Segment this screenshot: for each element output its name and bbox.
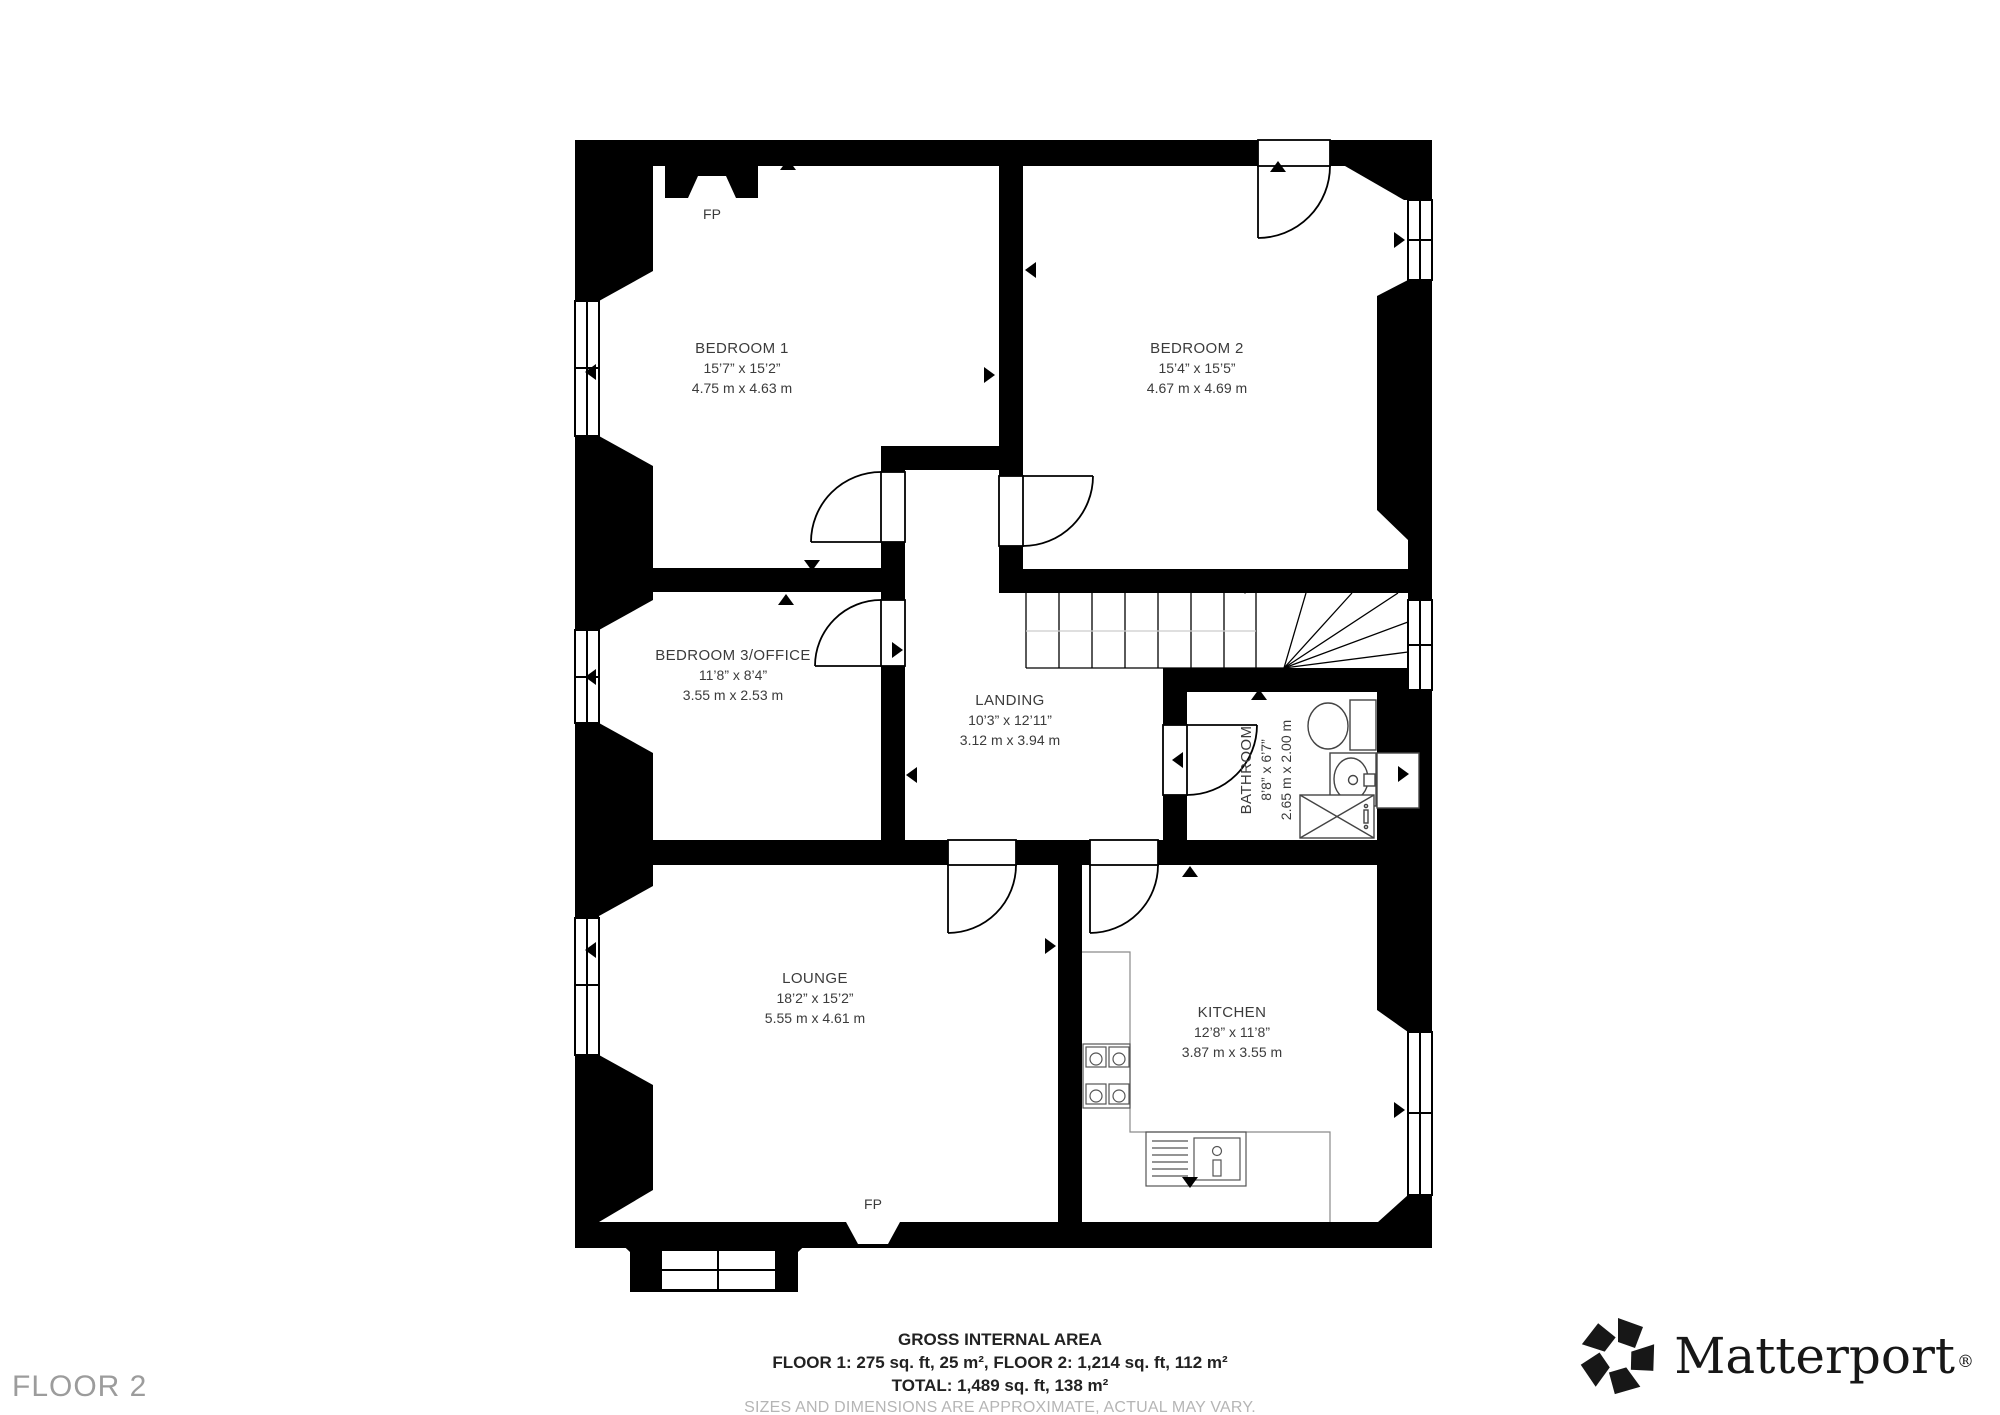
window-lounge-bay	[661, 1250, 776, 1290]
staircase	[1026, 593, 1408, 668]
disclaimer-text: SIZES AND DIMENSIONS ARE APPROXIMATE, AC…	[744, 1399, 1256, 1415]
door-bedroom2	[999, 476, 1093, 546]
fireplace-label-lounge: FP	[864, 1196, 882, 1212]
door-bedroom3	[815, 600, 905, 666]
marker-left	[906, 767, 917, 783]
fireplace-notches	[688, 176, 900, 1244]
room-label-bedroom2: BEDROOM 2 15’4” x 15’5” 4.67 m x 4.69 m	[1147, 338, 1247, 398]
matterport-logo: Matterport®	[1578, 1316, 1974, 1396]
door-lounge	[948, 840, 1016, 933]
room-label-kitchen: KITCHEN 12’8” x 11’8” 3.87 m x 3.55 m	[1182, 1002, 1282, 1062]
floor-areas-line: FLOOR 1: 275 sq. ft, 25 m², FLOOR 2: 1,2…	[744, 1353, 1256, 1373]
area-summary: GROSS INTERNAL AREA FLOOR 1: 275 sq. ft,…	[744, 1330, 1256, 1415]
marker-up	[1182, 866, 1198, 877]
toilet-icon	[1308, 700, 1376, 750]
room-label-bedroom1: BEDROOM 1 15’7” x 15’2” 4.75 m x 4.63 m	[692, 338, 792, 398]
floor-number-label: FLOOR 2	[12, 1370, 147, 1404]
marker-up	[778, 594, 794, 605]
marker-right	[984, 367, 995, 383]
window-lounge-left	[575, 918, 599, 1055]
door-bedroom2-top	[1258, 140, 1330, 238]
marker-right	[1394, 232, 1405, 248]
room-label-landing: LANDING 10’3” x 12’11” 3.12 m x 3.94 m	[960, 690, 1060, 750]
room-label-bathroom: BATHROOM 8’8” x 6’7” 2.65 m x 2.00 m	[1236, 720, 1296, 820]
door-bedroom1	[811, 472, 905, 542]
window-stairs-right	[1408, 600, 1432, 690]
room-label-bedroom3: BEDROOM 3/OFFICE 11’8” x 8’4” 3.55 m x 2…	[655, 645, 811, 705]
door-kitchen	[1090, 840, 1158, 933]
gross-internal-area-title: GROSS INTERNAL AREA	[744, 1330, 1256, 1350]
marker-right	[1394, 1102, 1405, 1118]
window-kitchen-right	[1408, 1032, 1432, 1195]
kitchen-counter	[1082, 952, 1330, 1222]
shower-icon	[1300, 795, 1374, 838]
matterport-logo-text: Matterport®	[1674, 1327, 1974, 1385]
fireplace-label-bedroom1: FP	[703, 206, 721, 222]
total-area-line: TOTAL: 1,489 sq. ft, 138 m²	[744, 1376, 1256, 1396]
room-label-lounge: LOUNGE 18’2” x 15’2” 5.55 m x 4.61 m	[765, 968, 865, 1028]
marker-left	[1025, 262, 1036, 278]
window-bedroom2-right	[1408, 200, 1432, 280]
floorplan-page: BEDROOM 1 15’7” x 15’2” 4.75 m x 4.63 m …	[0, 0, 2000, 1415]
stove-icon	[1083, 1044, 1130, 1108]
kitchen-fixtures	[1082, 952, 1330, 1222]
matterport-logo-icon	[1578, 1316, 1658, 1396]
marker-right	[1045, 938, 1056, 954]
